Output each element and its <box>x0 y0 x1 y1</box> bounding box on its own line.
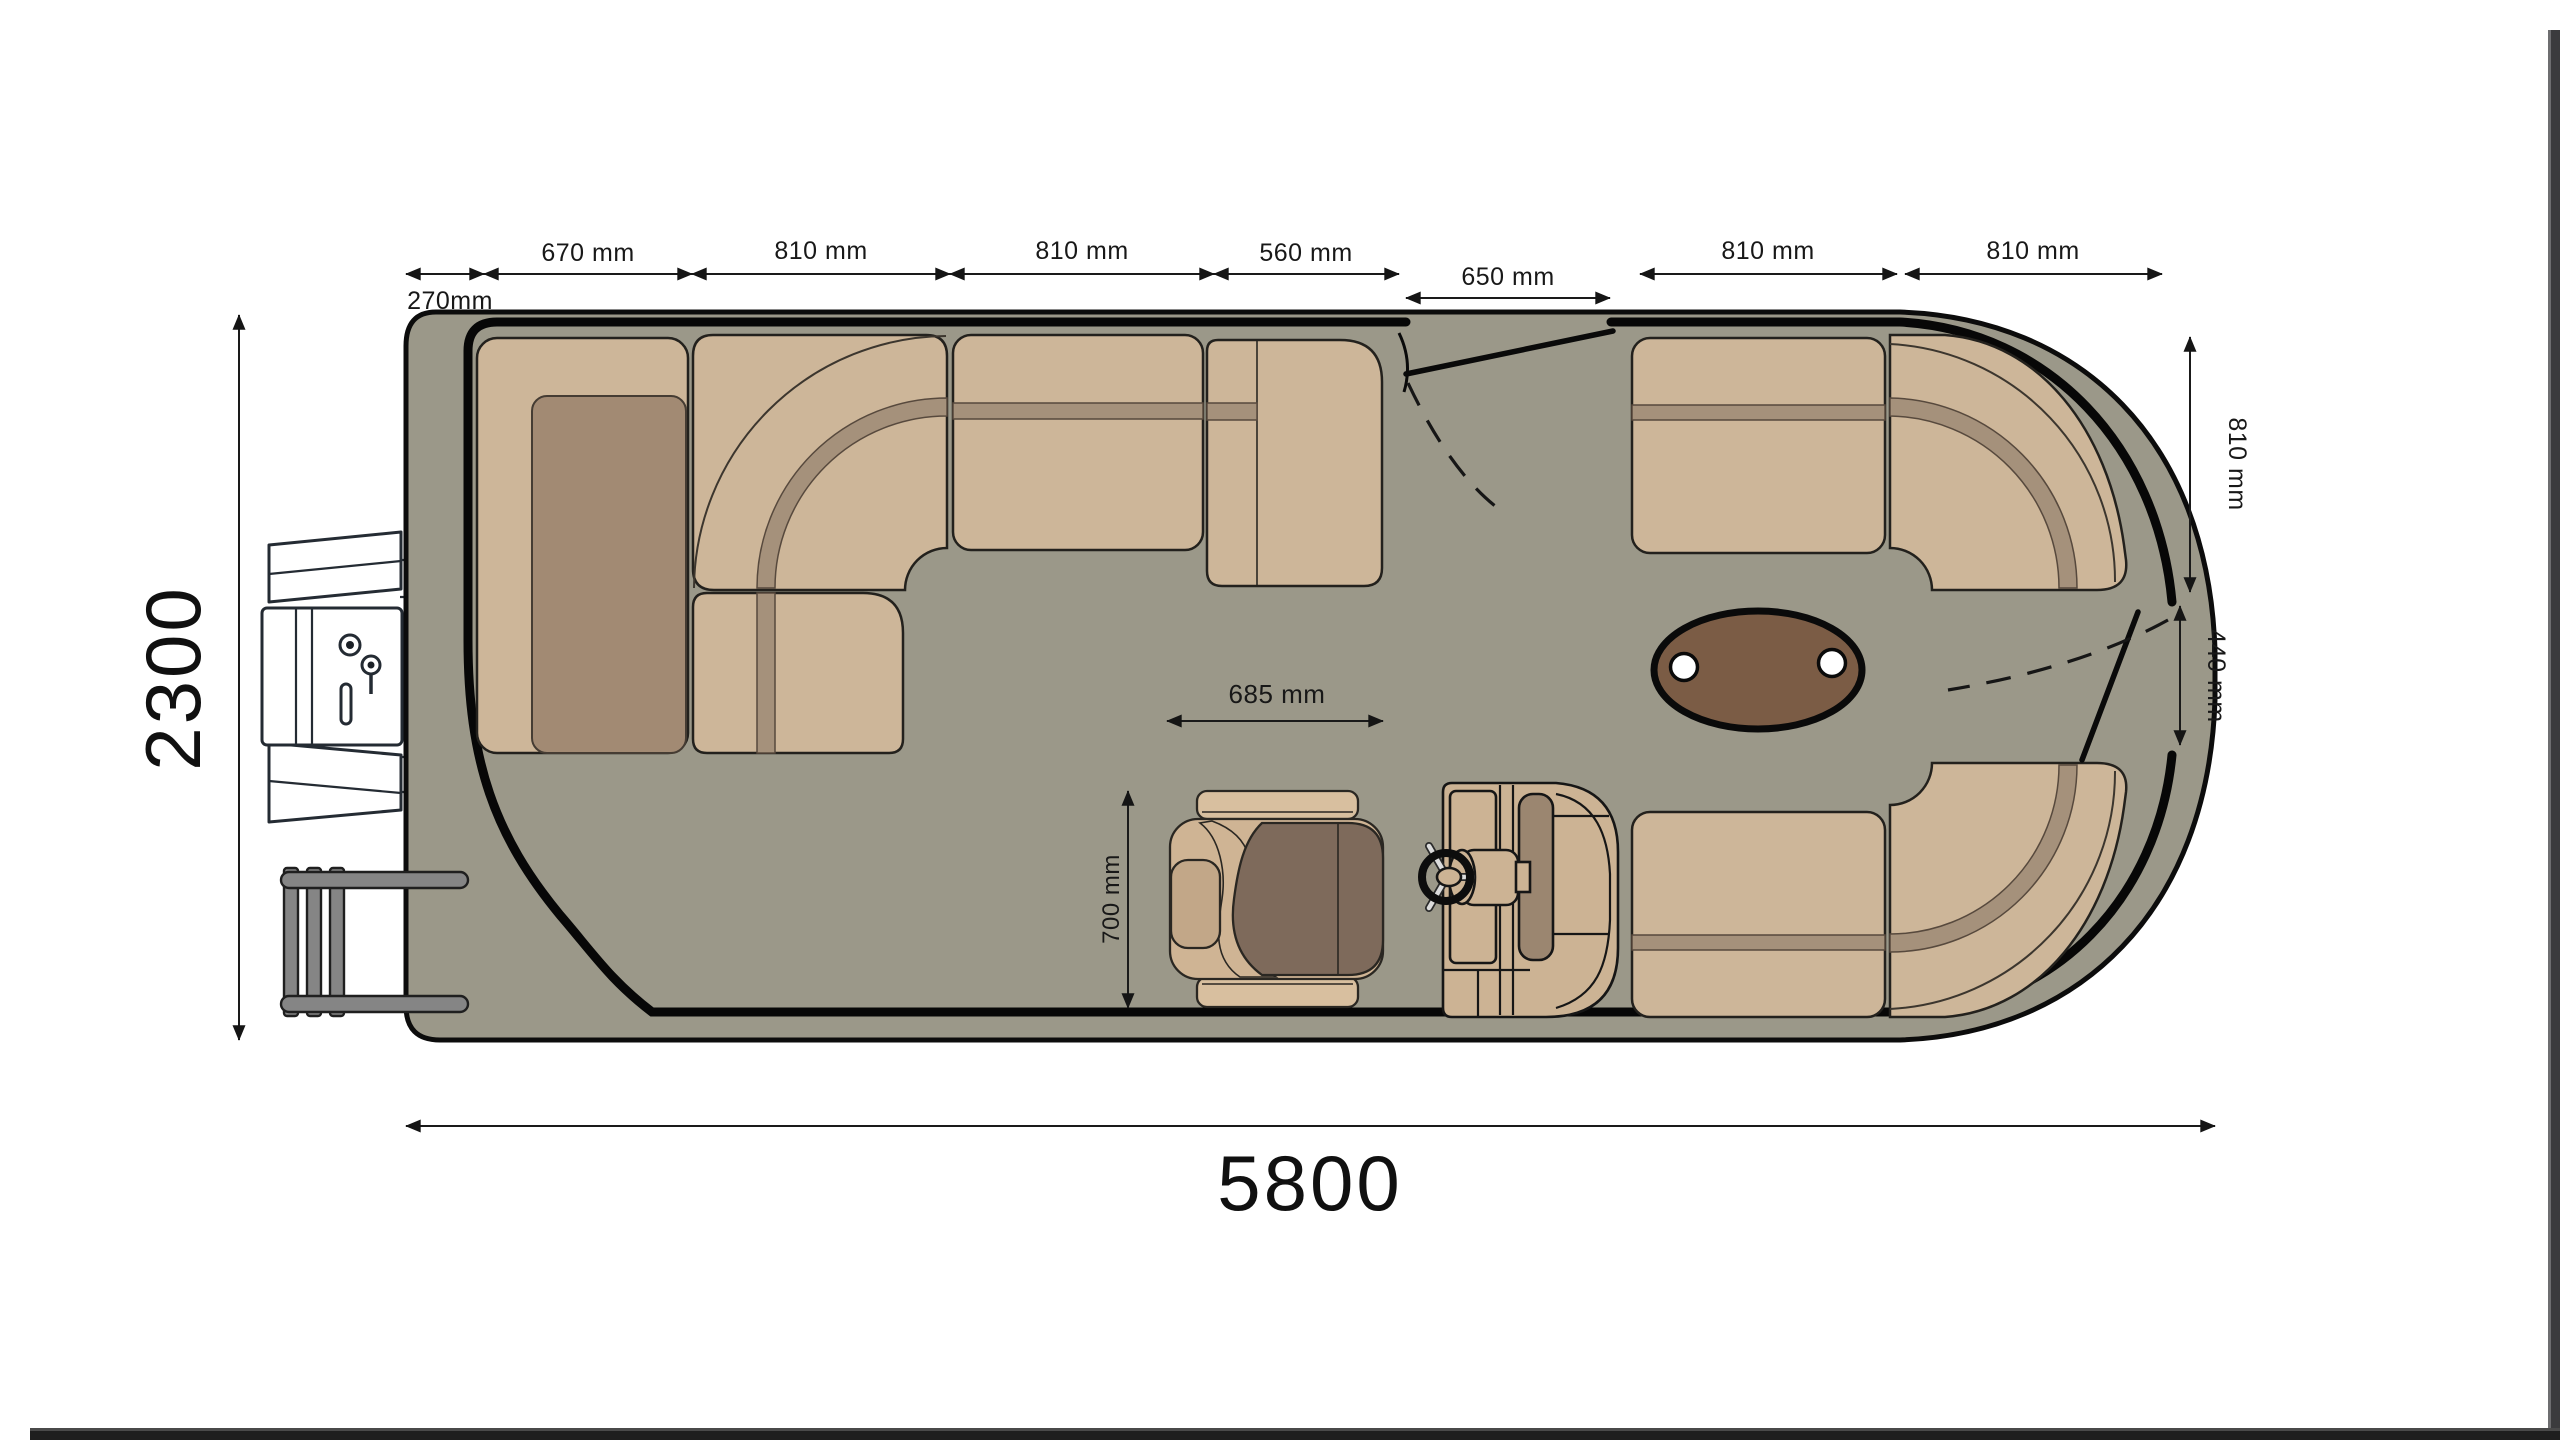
dim-label: 810 mm <box>1035 237 1128 265</box>
dim-label: 560 mm <box>1259 239 1352 267</box>
dim-label: 810 mm <box>1721 237 1814 265</box>
cup-holder <box>1819 650 1846 677</box>
chair-rear-bar <box>1197 977 1358 1007</box>
bottom-edge-highlight <box>30 1428 2560 1431</box>
chair-seat-cushion <box>1233 823 1383 975</box>
boarding-ladder-rungs <box>284 868 344 1016</box>
bow-bench-bottom <box>1632 812 1885 1017</box>
chair-front-bar <box>1197 791 1358 819</box>
dim-label: 810 mm <box>2223 417 2251 510</box>
piping-stripe <box>1632 405 1885 420</box>
dim-label: 650 mm <box>1461 263 1554 291</box>
piping-stripe <box>757 593 775 753</box>
stern-sofa-cushion <box>532 396 686 753</box>
l-return-seat <box>1207 340 1382 586</box>
overall-beam-label: 2300 <box>129 585 217 771</box>
page: { "document": { "background": "#ffffff",… <box>0 0 2560 1440</box>
chair-armrest-pad <box>1171 860 1220 948</box>
forward-bench-port <box>953 335 1203 550</box>
piping-stripe <box>1632 935 1885 950</box>
outboard-motor <box>262 532 414 822</box>
jump-seat-port <box>693 593 903 753</box>
captain-chair <box>1170 791 1383 1007</box>
piping-stripe <box>1207 403 1257 420</box>
throttle <box>1516 862 1530 892</box>
bow-table <box>1654 611 1862 729</box>
dim-label: 440 mm <box>2202 629 2230 722</box>
bow-bench-top <box>1632 338 1885 553</box>
chair-depth-label: 700 mm <box>1098 854 1125 944</box>
piping-stripe <box>953 403 1203 419</box>
helm-console <box>1422 783 1618 1017</box>
chair-width-label: 685 mm <box>1229 679 1326 709</box>
right-edge-highlight <box>2548 30 2551 1440</box>
overall-length-label: 5800 <box>1217 1139 1403 1227</box>
dim-label: 810 mm <box>1986 237 2079 265</box>
dim-label: 670 mm <box>541 239 634 267</box>
steering-wheel-hub <box>1437 868 1461 886</box>
floor-plan-drawing: 270mm 670 mm 810 mm 810 mm 560 mm 650 mm… <box>0 0 2560 1440</box>
dim-label: 810 mm <box>774 237 867 265</box>
dim-label: 270mm <box>407 287 493 315</box>
cup-holder <box>1671 654 1698 681</box>
